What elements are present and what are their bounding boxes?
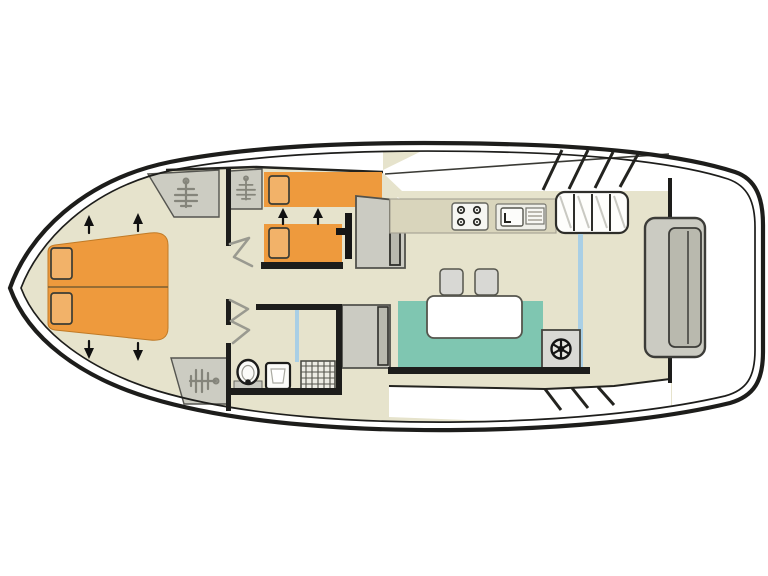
floor-plan-stage — [0, 0, 768, 576]
companionway-steps — [556, 192, 628, 233]
door-frame-post — [345, 213, 352, 259]
pillow — [269, 228, 289, 258]
shower-screen — [295, 309, 299, 362]
door-leaf-edge — [378, 307, 388, 365]
pillow — [51, 248, 72, 279]
pillow — [269, 176, 289, 204]
door-frame-stub — [336, 228, 345, 235]
aft-bench — [645, 218, 705, 357]
pillow — [51, 293, 72, 324]
windshield-deck — [381, 140, 672, 191]
helm-station — [542, 330, 580, 369]
bathroom-door — [342, 305, 390, 368]
dinette-table — [427, 296, 522, 338]
ship-wheel-icon — [552, 340, 571, 359]
boat-floor-plan — [0, 0, 768, 576]
galley-sink — [496, 204, 546, 230]
stool — [440, 269, 463, 295]
washbasin — [266, 363, 290, 389]
stove — [452, 203, 488, 230]
stool — [475, 269, 498, 295]
